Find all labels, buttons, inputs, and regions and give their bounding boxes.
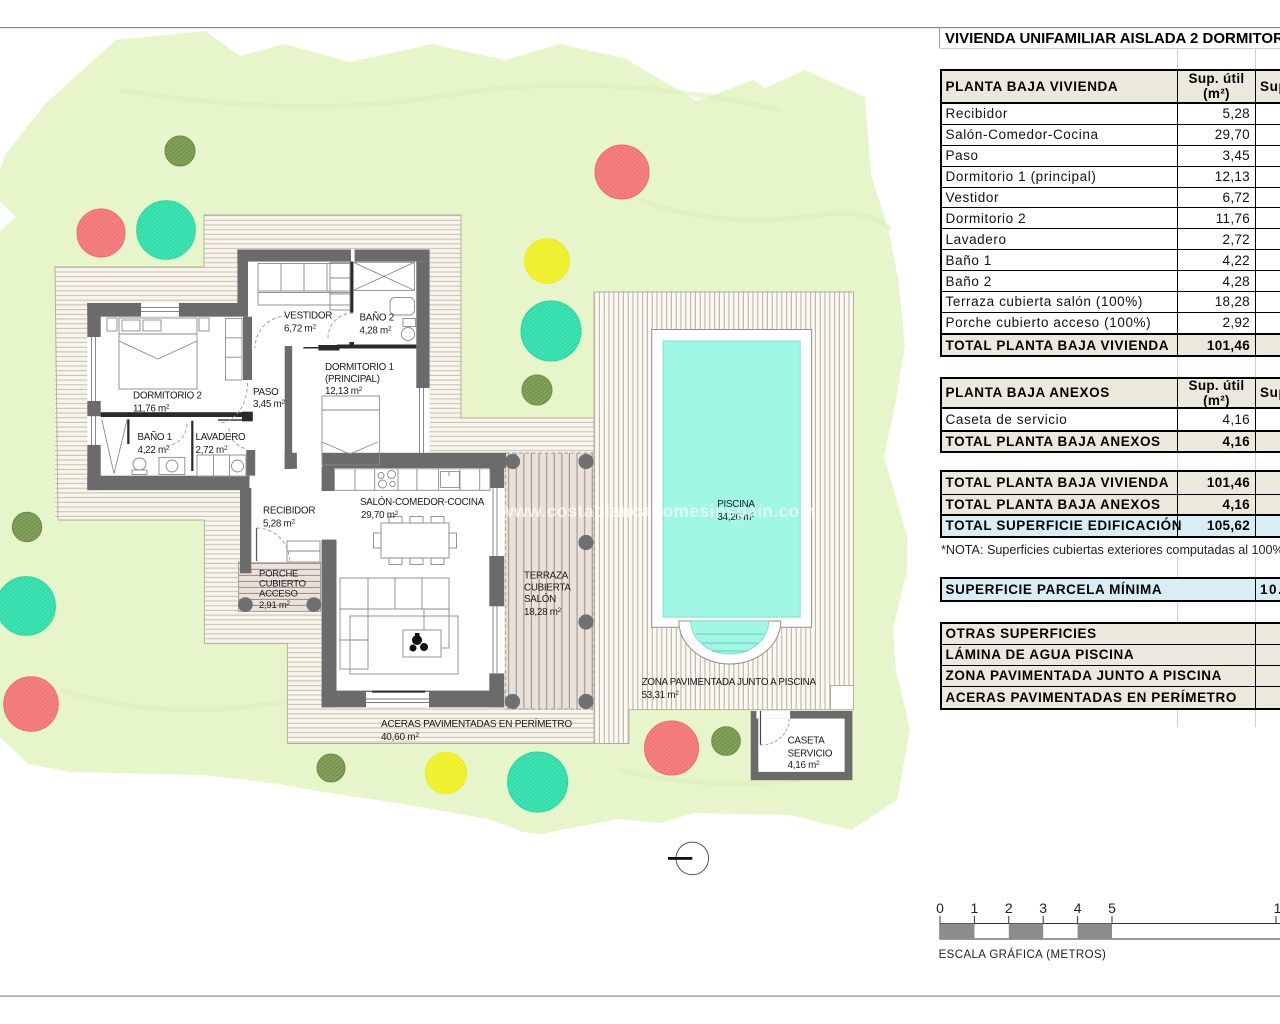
svg-text:CUBIERTA: CUBIERTA xyxy=(524,583,571,594)
svg-text:2,72 m2: 2,72 m2 xyxy=(196,445,228,456)
svg-text:4: 4 xyxy=(1074,900,1082,916)
svg-text:TERRAZA: TERRAZA xyxy=(524,571,569,582)
svg-text:DORMITORIO 1: DORMITORIO 1 xyxy=(325,362,394,373)
svg-text:53,31 m2: 53,31 m2 xyxy=(642,690,680,701)
svg-text:(PRINCIPAL): (PRINCIPAL) xyxy=(325,374,380,385)
svg-text:11,76 m2: 11,76 m2 xyxy=(133,404,170,415)
svg-text:5,28 m2: 5,28 m2 xyxy=(263,519,295,530)
svg-text:SALÓN-COMEDOR-COCINA: SALÓN-COMEDOR-COCINA xyxy=(360,497,485,508)
svg-text:2,91 m2: 2,91 m2 xyxy=(259,600,291,611)
svg-text:40,60 m2: 40,60 m2 xyxy=(381,732,419,743)
svg-text:BAÑO 2: BAÑO 2 xyxy=(360,313,394,324)
svg-text:1: 1 xyxy=(971,900,979,916)
svg-text:ACERAS PAVIMENTADAS EN PERÍMET: ACERAS PAVIMENTADAS EN PERÍMETRO xyxy=(381,717,572,730)
svg-text:PASO: PASO xyxy=(253,387,279,398)
svg-text:ZONA PAVIMENTADA JUNTO A PISCI: ZONA PAVIMENTADA JUNTO A PISCINA xyxy=(642,677,817,688)
svg-text:ESCALA GRÁFICA (METROS): ESCALA GRÁFICA (METROS) xyxy=(939,948,1107,961)
svg-text:6,72 m2: 6,72 m2 xyxy=(284,324,316,335)
svg-text:4,28 m2: 4,28 m2 xyxy=(360,326,392,337)
svg-text:3,45 m2: 3,45 m2 xyxy=(253,399,285,410)
svg-text:SALÓN: SALÓN xyxy=(524,594,556,605)
svg-text:12,13 m2: 12,13 m2 xyxy=(325,386,363,397)
svg-text:VESTIDOR: VESTIDOR xyxy=(284,311,332,322)
svg-text:4,16 m2: 4,16 m2 xyxy=(788,760,820,771)
svg-text:0: 0 xyxy=(936,900,944,916)
svg-text:ACCESO: ACCESO xyxy=(259,589,298,600)
svg-text:1: 1 xyxy=(1274,900,1280,916)
svg-text:3: 3 xyxy=(1039,900,1047,916)
svg-text:SERVICIO: SERVICIO xyxy=(788,749,833,760)
svg-text:18,28 m2: 18,28 m2 xyxy=(524,607,562,618)
svg-text:4,22 m2: 4,22 m2 xyxy=(138,445,170,456)
svg-text:www.costablancahomesinspain.co: www.costablancahomesinspain.com xyxy=(499,501,816,521)
svg-text:BAÑO 1: BAÑO 1 xyxy=(138,432,172,443)
svg-text:5: 5 xyxy=(1108,900,1116,916)
svg-text:2: 2 xyxy=(1005,900,1013,916)
svg-text:CASETA: CASETA xyxy=(788,736,826,747)
svg-text:DORMITORIO 2: DORMITORIO 2 xyxy=(133,391,202,402)
svg-text:RECIBIDOR: RECIBIDOR xyxy=(263,506,315,517)
svg-text:29,70 m2: 29,70 m2 xyxy=(361,510,399,521)
svg-text:LAVADERO: LAVADERO xyxy=(196,432,247,443)
